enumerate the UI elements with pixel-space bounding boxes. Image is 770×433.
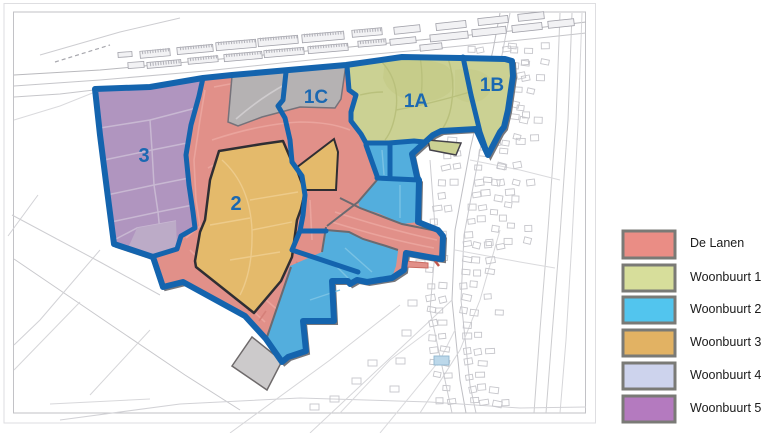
svg-text:Woonbuurt 4: Woonbuurt 4: [690, 368, 761, 382]
svg-text:2: 2: [230, 193, 241, 215]
svg-text:Woonbuurt 5: Woonbuurt 5: [690, 401, 761, 415]
svg-text:1C: 1C: [304, 87, 329, 108]
svg-text:Woonbuurt 2: Woonbuurt 2: [690, 302, 761, 316]
svg-text:Woonbuurt 3: Woonbuurt 3: [690, 335, 761, 349]
svg-text:1B: 1B: [480, 75, 504, 96]
svg-text:De Lanen: De Lanen: [690, 236, 744, 250]
svg-text:1A: 1A: [404, 91, 429, 112]
svg-text:Woonbuurt 1: Woonbuurt 1: [690, 270, 761, 284]
svg-text:3: 3: [138, 145, 149, 167]
